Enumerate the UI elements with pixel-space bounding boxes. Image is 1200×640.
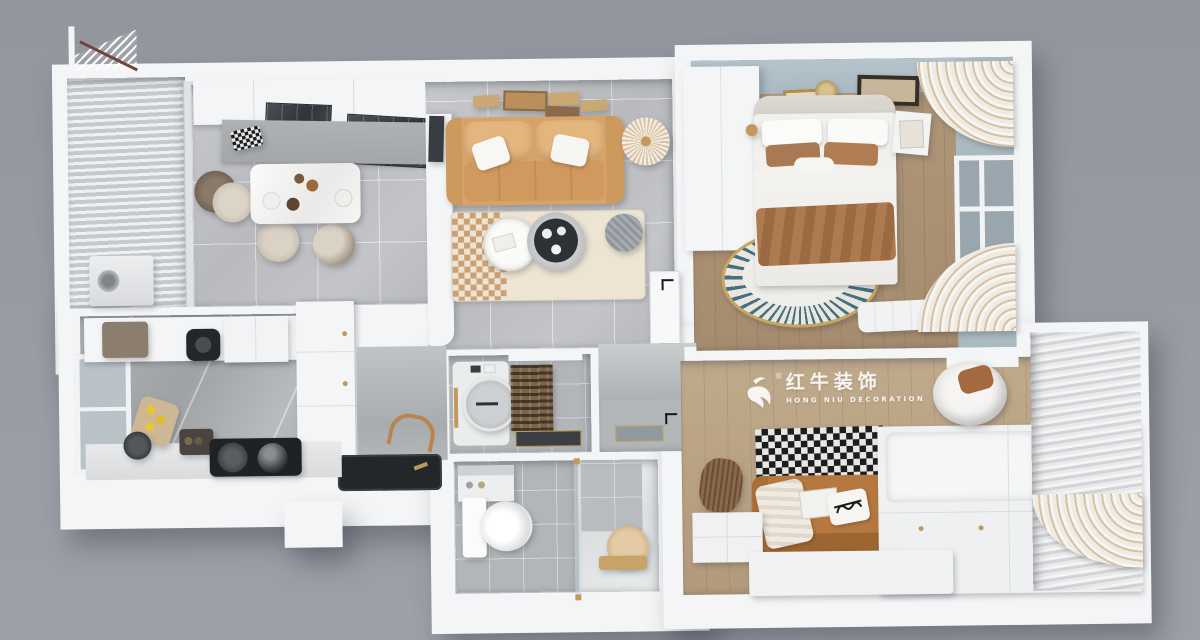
cabinet-divider bbox=[296, 351, 354, 353]
wall-art-frame bbox=[581, 99, 608, 112]
bull-logo-icon: ® bbox=[745, 374, 779, 414]
cup bbox=[542, 229, 552, 239]
rice-cooker bbox=[186, 329, 220, 361]
bed bbox=[753, 112, 897, 286]
window-mullion bbox=[80, 407, 126, 412]
plate bbox=[262, 192, 280, 210]
entry-floor-drain bbox=[615, 425, 663, 442]
door-handle bbox=[662, 279, 674, 290]
shower-wall-tiles bbox=[580, 460, 643, 533]
wine-rack bbox=[179, 429, 213, 455]
wardrobe-divider bbox=[720, 67, 723, 251]
kitchen-tall-cabinets bbox=[296, 301, 356, 458]
dining-table bbox=[250, 163, 361, 224]
washing-machine bbox=[89, 255, 154, 306]
shower-stool bbox=[599, 555, 647, 570]
cup bbox=[557, 226, 566, 235]
table-decor bbox=[294, 174, 304, 184]
watermark-title: 红牛装饰 bbox=[786, 372, 925, 393]
books bbox=[492, 233, 517, 253]
glasses-doodle bbox=[826, 488, 871, 527]
window-mullion bbox=[960, 206, 1014, 212]
bottle bbox=[466, 482, 473, 489]
bottle bbox=[194, 437, 202, 445]
lemon bbox=[155, 414, 166, 425]
wall-art-frame bbox=[503, 90, 547, 111]
pan bbox=[257, 443, 287, 473]
plate bbox=[334, 189, 352, 207]
magazine bbox=[899, 120, 924, 149]
cabinet-knob bbox=[343, 381, 348, 386]
leaning-picture bbox=[428, 116, 444, 162]
wardrobe bbox=[683, 66, 761, 251]
coffee-table-tray bbox=[534, 218, 579, 263]
cabinet-knob bbox=[342, 331, 347, 336]
cabinet-divider bbox=[255, 316, 257, 362]
soap-tray bbox=[471, 365, 481, 372]
cabinet-divider bbox=[297, 405, 355, 407]
glasses-print-pillow bbox=[826, 488, 871, 527]
apartment-plan: ® 红牛装饰 HONG NIU DECORATION bbox=[0, 0, 1200, 640]
sink-handle bbox=[414, 462, 429, 471]
slab-kitchen-step bbox=[284, 501, 343, 548]
table-decor bbox=[306, 179, 318, 191]
mixing-bowl bbox=[123, 431, 151, 459]
range-hood-box bbox=[102, 322, 148, 359]
teapot bbox=[286, 198, 299, 211]
platform-mattress bbox=[885, 431, 1036, 503]
towel-bar bbox=[454, 388, 458, 428]
fridge-cabinet bbox=[224, 316, 289, 363]
bath-cabinet bbox=[458, 465, 514, 502]
bedside-lamp bbox=[746, 124, 758, 136]
soap-tray bbox=[484, 364, 496, 373]
platform-knob bbox=[919, 526, 924, 531]
watermark: ® 红牛装饰 HONG NIU DECORATION bbox=[745, 372, 905, 414]
lemon bbox=[144, 421, 155, 432]
checkered-rug bbox=[755, 425, 884, 481]
kitchen-sink bbox=[338, 454, 442, 491]
sofa-armrest bbox=[446, 118, 463, 206]
cup bbox=[551, 244, 561, 254]
registered-mark: ® bbox=[775, 372, 783, 381]
bottle bbox=[184, 437, 192, 445]
floorplan-render: ® 红牛装饰 HONG NIU DECORATION bbox=[0, 0, 1200, 640]
floor-drain bbox=[515, 430, 581, 447]
wooden-bath-mat bbox=[511, 365, 554, 432]
wall-art-frame bbox=[549, 92, 580, 106]
vanity-ledge bbox=[508, 348, 582, 361]
basin-faucet bbox=[476, 402, 498, 405]
platform-step bbox=[749, 550, 954, 596]
bed-throw-blanket bbox=[756, 202, 897, 266]
lemon bbox=[145, 405, 156, 416]
armchair-cushion bbox=[956, 363, 995, 395]
sofa bbox=[446, 116, 625, 206]
cooktop bbox=[209, 438, 301, 477]
wall-art-frame bbox=[473, 95, 500, 109]
bottle bbox=[478, 481, 485, 488]
cooker-lid bbox=[195, 337, 211, 353]
sofa-armrest bbox=[606, 116, 625, 204]
balcony-railing-post bbox=[68, 26, 75, 78]
platform-knob bbox=[979, 525, 984, 530]
nightstand bbox=[892, 111, 932, 156]
pot bbox=[217, 442, 247, 472]
cabinet-divider bbox=[253, 80, 255, 124]
door-stop-mark bbox=[665, 413, 677, 424]
cabinet-top bbox=[458, 465, 514, 476]
washing-machine-door bbox=[97, 270, 119, 292]
lamp-center bbox=[641, 136, 651, 146]
watermark-subtitle: HONG NIU DECORATION bbox=[786, 395, 925, 405]
